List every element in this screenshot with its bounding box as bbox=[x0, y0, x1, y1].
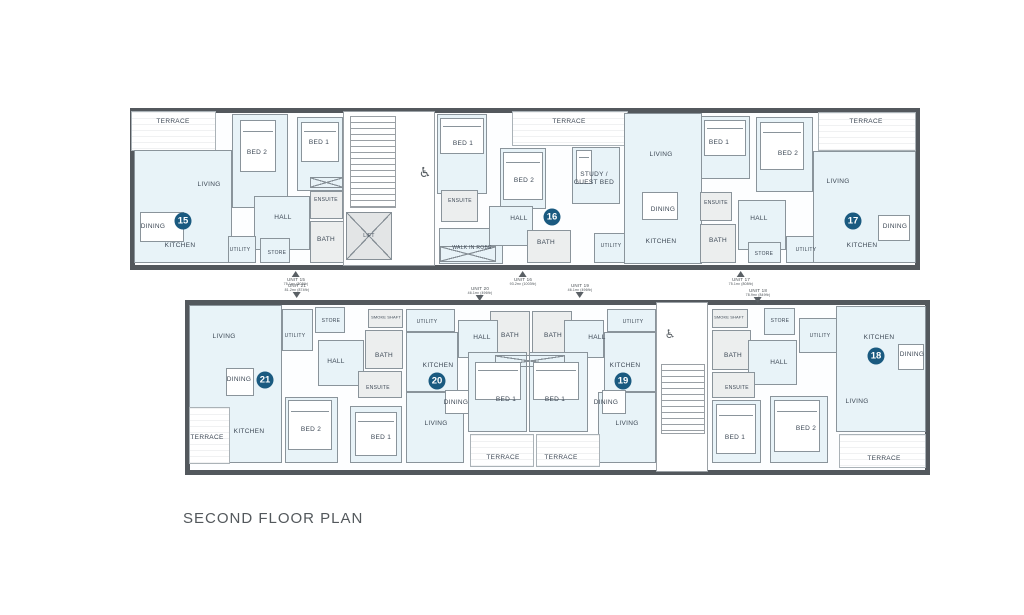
ensuite-unit16 bbox=[441, 190, 478, 222]
wardrobe-hatch bbox=[310, 177, 343, 188]
wardrobe-hatch bbox=[440, 246, 496, 262]
bed-icon bbox=[288, 400, 332, 450]
utility-unit15 bbox=[228, 236, 256, 263]
store-unit17 bbox=[748, 242, 781, 263]
unit-badge-15: 15 bbox=[175, 213, 192, 230]
terrace-unit15 bbox=[131, 111, 216, 151]
bath-unit21 bbox=[365, 330, 403, 369]
bed-icon bbox=[440, 118, 484, 154]
pointer-triangle bbox=[576, 292, 584, 298]
wheelchair-icon: ♿ bbox=[419, 165, 432, 179]
utility-unit20 bbox=[406, 309, 455, 332]
bed-icon bbox=[704, 120, 746, 156]
bath-unit18 bbox=[712, 330, 751, 370]
unit-badge-20: 20 bbox=[429, 373, 446, 390]
pointer-unit-18: UNIT 1878.9m² (849ft²) bbox=[746, 288, 771, 303]
store-unit18 bbox=[764, 308, 795, 335]
store-unit15 bbox=[260, 238, 290, 263]
pointer-area-label: 75.1m² (808ft²) bbox=[729, 282, 754, 286]
lift-shaft bbox=[346, 212, 392, 260]
bed-icon bbox=[355, 412, 397, 456]
pointer-unit-19: UNIT 1946.1m² (496ft²) bbox=[568, 283, 593, 298]
terrace-unit19 bbox=[536, 434, 600, 467]
utility-unit21 bbox=[282, 309, 313, 351]
pointer-unit-21: UNIT 2181.2m² (874ft²) bbox=[285, 283, 310, 298]
unit-badge-21: 21 bbox=[257, 372, 274, 389]
terrace-unit18 bbox=[839, 434, 926, 468]
bed-icon bbox=[301, 122, 339, 162]
bed-icon bbox=[774, 400, 820, 452]
unit-badge-18: 18 bbox=[868, 348, 885, 365]
bath-unit17 bbox=[700, 224, 736, 263]
pointer-unit-16: UNIT 1693.2m² (1003ft²) bbox=[510, 271, 537, 286]
floor-plan-canvas: LIFTTERRACELIVINGDININGKITCHENBED 2BED 1… bbox=[0, 0, 1024, 615]
bed-icon bbox=[475, 362, 521, 400]
ensuite-unit21 bbox=[358, 371, 402, 398]
unit-badge-17: 17 bbox=[845, 213, 862, 230]
terrace-unit20 bbox=[470, 434, 534, 467]
terrace-unit21 bbox=[189, 407, 230, 464]
hall-unit18 bbox=[748, 340, 797, 385]
terrace-unit16 bbox=[512, 111, 628, 146]
terrace-unit17 bbox=[818, 112, 916, 151]
living-unit15 bbox=[134, 150, 232, 263]
ensuite-unit17 bbox=[700, 192, 732, 221]
pointer-triangle bbox=[754, 297, 762, 303]
smoke-shaft-unit18 bbox=[712, 309, 748, 328]
unit-badge-16: 16 bbox=[544, 209, 561, 226]
unit-badge-19: 19 bbox=[615, 373, 632, 390]
table-icon bbox=[226, 368, 254, 396]
table-icon bbox=[878, 215, 910, 241]
wheelchair-icon: ♿ bbox=[665, 328, 676, 340]
smoke-shaft-unit21 bbox=[368, 309, 403, 328]
table-icon bbox=[642, 192, 678, 220]
pointer-unit-20: UNIT 2046.1m² (496ft²) bbox=[468, 286, 493, 301]
pointer-triangle bbox=[293, 292, 301, 298]
pointer-unit-17: UNIT 1775.1m² (808ft²) bbox=[729, 271, 754, 286]
bed-icon bbox=[240, 120, 276, 172]
table-icon bbox=[602, 390, 626, 414]
pointer-triangle bbox=[476, 295, 484, 301]
bed-icon bbox=[716, 404, 756, 454]
staircase-bottom-core bbox=[661, 364, 705, 434]
table-icon bbox=[445, 390, 469, 414]
bath-unit15 bbox=[310, 221, 344, 263]
utility-unit19 bbox=[607, 309, 656, 332]
staircase-top-core bbox=[350, 116, 396, 208]
living-unit16 bbox=[624, 113, 702, 264]
bed-icon bbox=[503, 152, 543, 200]
living-unit17 bbox=[813, 151, 916, 263]
store-unit21 bbox=[315, 307, 345, 333]
bed-icon bbox=[760, 122, 804, 170]
ensuite-unit15 bbox=[310, 191, 343, 219]
ensuite-unit18 bbox=[712, 372, 755, 398]
bed-icon bbox=[533, 362, 579, 400]
utility-unit18 bbox=[799, 318, 837, 353]
pointer-area-label: 93.2m² (1003ft²) bbox=[510, 282, 537, 286]
bath-unit16 bbox=[527, 230, 571, 263]
page-title: SECOND FLOOR PLAN bbox=[183, 510, 363, 527]
table-icon bbox=[898, 344, 924, 370]
bed-icon bbox=[576, 150, 592, 184]
